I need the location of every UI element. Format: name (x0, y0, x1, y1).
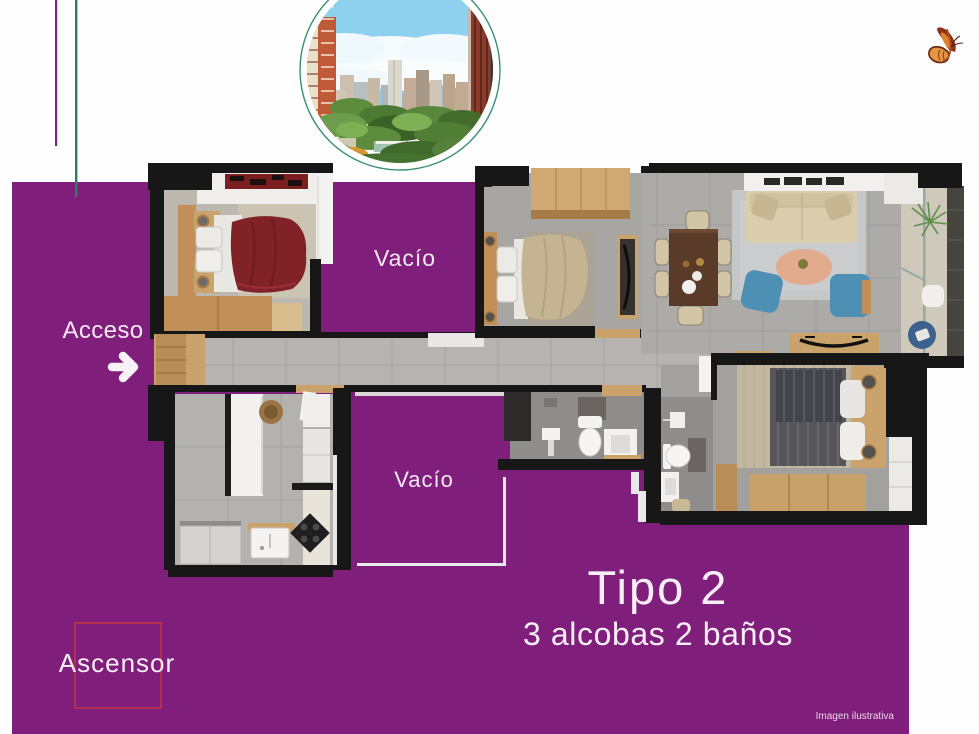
svg-text:Ascensor: Ascensor (59, 648, 175, 678)
svg-text:3 alcobas 2 baños: 3 alcobas 2 baños (523, 616, 793, 652)
svg-text:Tipo 2: Tipo 2 (588, 561, 729, 614)
svg-text:Vacío: Vacío (394, 467, 454, 492)
svg-text:Imagen ilustrativa: Imagen ilustrativa (816, 711, 895, 722)
svg-text:Acceso: Acceso (62, 317, 143, 344)
svg-text:Vacío: Vacío (374, 245, 436, 271)
